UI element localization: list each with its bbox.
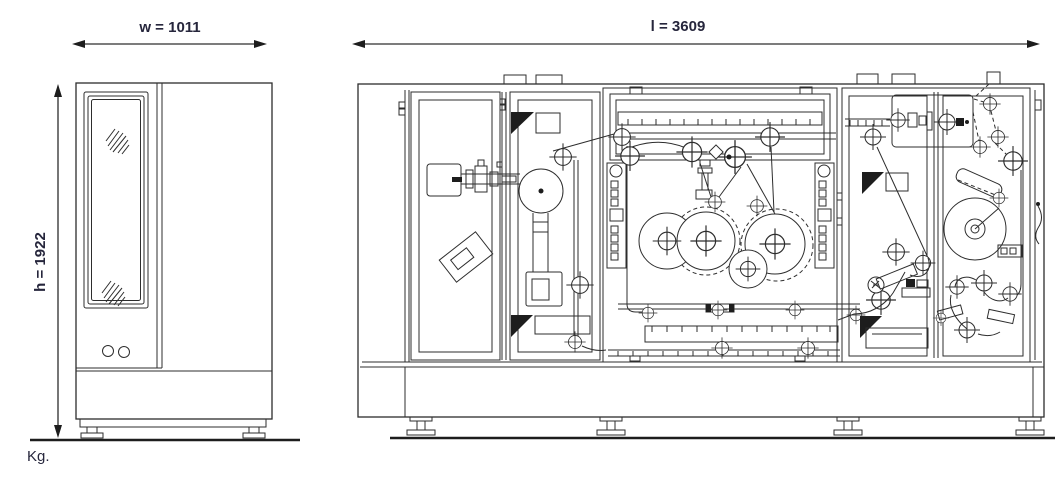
leveling-foot <box>1016 417 1044 435</box>
weight-unit-label: Kg. <box>27 448 50 465</box>
base-frame <box>405 367 1044 435</box>
length-dimension: l = 3609 <box>352 18 1040 48</box>
roof-lifting-tabs <box>504 72 1000 84</box>
front-elevation-view <box>358 72 1055 438</box>
warning-triangle-4 <box>860 316 882 338</box>
name-plate-2 <box>535 316 590 334</box>
dryer-unit <box>610 87 836 160</box>
width-label: w = 1011 <box>138 19 200 36</box>
width-dimension: w = 1011 <box>72 19 267 48</box>
side-elevation-view <box>30 83 300 440</box>
leveling-foot <box>407 417 435 435</box>
length-label: l = 3609 <box>651 18 706 35</box>
side-base <box>80 419 266 438</box>
glass-door-window <box>84 92 148 308</box>
control-panel-left <box>607 163 626 268</box>
door-panel-1 <box>411 92 500 360</box>
winder-mechanism <box>838 84 1042 348</box>
bottom-tray <box>608 301 860 361</box>
control-panel-right <box>815 163 834 268</box>
side-cabinet-outline <box>76 83 272 419</box>
height-dimension: h = 1922 <box>32 84 62 438</box>
leveling-foot <box>597 417 625 435</box>
warning-triangle-1 <box>511 112 534 134</box>
warning-triangle-3 <box>862 172 884 194</box>
technical-drawing: w = 1011 h = 1922 Kg. l = 3609 <box>0 0 1060 478</box>
leveling-foot <box>834 417 862 435</box>
door-buttons <box>103 346 130 358</box>
name-plate-1 <box>536 113 560 133</box>
unwind-mechanism <box>427 112 606 353</box>
fabric-rolls <box>639 207 813 288</box>
glass-glare-marks <box>102 129 129 306</box>
warning-triangle-2 <box>511 315 533 337</box>
height-label: h = 1922 <box>32 232 49 292</box>
name-plate-3 <box>886 173 908 191</box>
machine-dimension-drawing: w = 1011 h = 1922 Kg. l = 3609 <box>0 0 1060 478</box>
